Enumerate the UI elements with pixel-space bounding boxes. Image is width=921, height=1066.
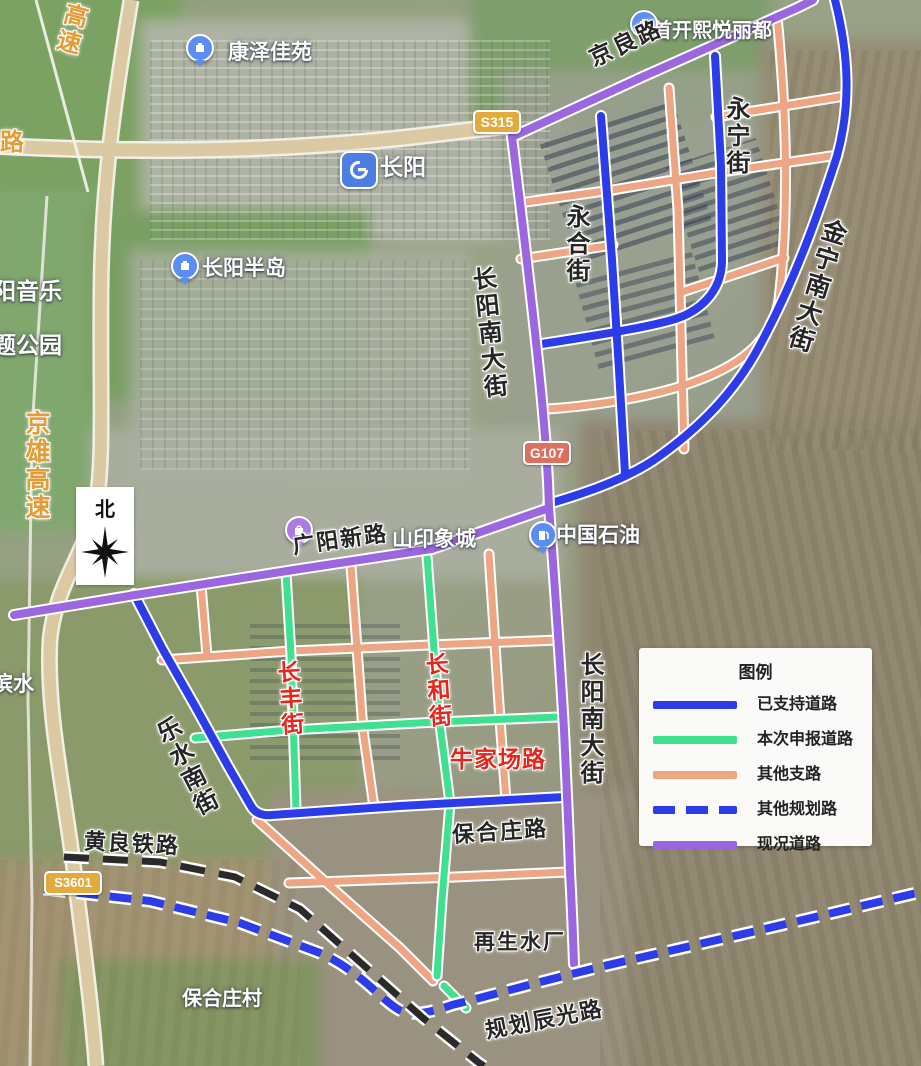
place-label-yinxiangcheng: 山印象城 (392, 523, 476, 553)
compass-north-label: 北 (76, 493, 134, 522)
legend-swatch-orange-solid (653, 771, 737, 779)
building-icon (194, 42, 206, 54)
compass-north-indicator: 北 (76, 487, 134, 585)
compass-star-icon (78, 522, 132, 582)
legend-panel: 图例 已支持道路 本次申报道路 其他支路 其他规划路 现况道路 (639, 648, 872, 846)
legend-swatch-green-solid (653, 736, 737, 744)
subway-logo-icon (348, 159, 370, 181)
street-label-lu-partial: 路 (0, 122, 24, 157)
residence-pin (186, 34, 214, 62)
legend-swatch-blue-solid (653, 701, 737, 709)
street-label-jingxiong-expressway: 京雄高速 (18, 410, 54, 522)
metro-station-icon (340, 151, 378, 189)
route-badge-s315: S315 (473, 110, 521, 134)
place-label-binshui: 滨水 (0, 668, 34, 698)
place-label-zaishengshuichang: 再生水厂 (474, 926, 566, 956)
legend-swatch-purple-solid (653, 841, 737, 849)
legend-item-existing: 现况道路 (653, 834, 858, 856)
street-label-huangliang-railway: 黄良铁路 (83, 824, 181, 861)
street-label-baohezhuang-road: 保合庄路 (451, 811, 549, 850)
street-label-yongning-street: 永宁街 (718, 96, 753, 177)
street-label-niujiachang-road: 牛家场路 (450, 740, 546, 774)
route-badge-s3601: S3601 (44, 871, 102, 895)
legend-item-branch: 其他支路 (653, 764, 858, 786)
legend-title: 图例 (639, 658, 872, 683)
place-label-yangyinyue: 阳音乐 (0, 272, 62, 306)
legend-swatch-blue-dashed (653, 806, 737, 814)
petrol-station-pin (529, 521, 557, 549)
building-icon (179, 260, 191, 272)
route-badge-g107: G107 (523, 441, 571, 465)
place-label-zhongguoshiyou: 中国石油 (556, 519, 640, 549)
street-label-changyangnan-avenue-lower: 长阳南大街 (572, 652, 607, 787)
place-label-kangzejiayuan: 康泽佳苑 (228, 36, 312, 66)
street-label-changfeng-street: 长丰街 (269, 659, 308, 739)
residence-pin (171, 252, 199, 280)
legend-item-supported: 已支持道路 (653, 694, 858, 716)
place-label-shoukai: 首开熙悦丽都 (652, 14, 772, 43)
place-label-baohezhuang-village: 保合庄村 (182, 982, 262, 1011)
place-label-changyang-station: 长阳 (380, 148, 426, 182)
legend-item-planned: 其他规划路 (653, 799, 858, 821)
street-label-yonghe-street: 永合街 (558, 204, 593, 285)
map-canvas[interactable]: 首开熙悦丽都 (0, 0, 921, 1066)
place-label-tigongyuan: 题公园 (0, 326, 62, 360)
place-label-changyang-peninsula: 长阳半岛 (202, 252, 286, 282)
gas-pump-icon (537, 529, 549, 541)
legend-item-applied: 本次申报道路 (653, 729, 858, 751)
street-label-changhe-street: 长和街 (417, 651, 456, 731)
